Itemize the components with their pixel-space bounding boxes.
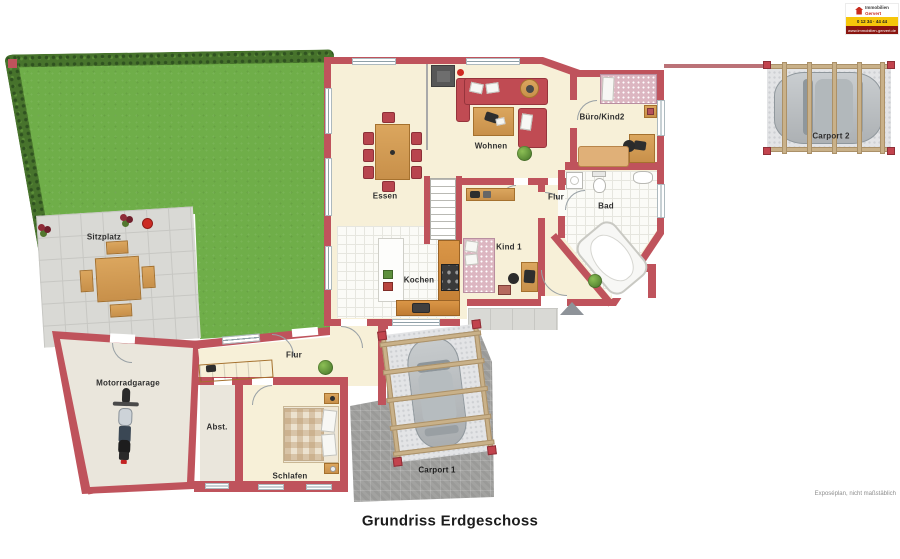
picture-frame: [498, 285, 511, 295]
carport-1-post: [487, 445, 497, 455]
flower-pot: [120, 214, 127, 221]
room-label-wohnen: Wohnen: [475, 142, 508, 151]
door-opening: [425, 150, 429, 176]
kitchen-item-green: [383, 270, 393, 279]
room-label-kind1: Kind 1: [496, 243, 522, 252]
sofa-throw: [520, 113, 533, 130]
carport-2-post: [887, 61, 895, 69]
door-opening: [538, 192, 545, 218]
entrance-arrow: [560, 302, 584, 315]
carport-1-post: [393, 457, 403, 467]
bed-pillow: [321, 409, 338, 433]
motorcycle: [109, 388, 142, 467]
window: [325, 158, 332, 216]
carport-2-beam: [782, 62, 787, 154]
nightstand-lamp: [330, 396, 335, 401]
entrance-walkway: [468, 308, 558, 330]
dining-chair: [411, 132, 422, 145]
staircase: [430, 178, 456, 240]
room-label-carport2: Carport 2: [812, 132, 849, 141]
terrace-table: [95, 256, 142, 303]
bedroom-east-wall: [340, 385, 348, 492]
window: [466, 58, 520, 65]
dining-chair: [411, 166, 422, 179]
logo-name-line1: Immobilien: [865, 5, 889, 10]
nightstand-lamp: [330, 466, 336, 472]
side-table-decor: [526, 85, 534, 93]
logo-header: Immobilien Gervert: [846, 4, 898, 17]
kitchen-sink: [412, 303, 430, 313]
bed-pillow: [464, 240, 478, 253]
books: [470, 191, 480, 198]
window: [352, 58, 396, 65]
fireplace: [431, 65, 455, 87]
picture-frame: [647, 108, 654, 115]
carport-2-post: [763, 147, 771, 155]
door-opening: [341, 319, 367, 326]
floor-plan-canvas: Essen Wohnen Büro/Kind2 Flur Bad Kind 1 …: [0, 0, 900, 559]
sink: [633, 171, 653, 184]
carport-2-beam: [880, 62, 885, 154]
door-opening: [514, 178, 528, 185]
office-sofa: [578, 146, 629, 167]
carport-2-post: [763, 61, 771, 69]
room-label-schlafen: Schlafen: [273, 472, 308, 481]
window: [325, 246, 332, 290]
dining-chair: [363, 149, 374, 162]
boundary-wall-corner: [8, 59, 17, 68]
door-opening: [252, 378, 273, 385]
laptop: [524, 270, 536, 284]
window: [205, 483, 229, 489]
carport-2-post: [887, 147, 895, 155]
table-decor: [390, 150, 395, 155]
sofa-pillow: [485, 82, 499, 94]
bed-pillow: [601, 77, 614, 102]
desk-chair: [508, 273, 519, 284]
room-label-buero-kind2: Büro/Kind2: [579, 113, 624, 122]
room-label-sitzplatz: Sitzplatz: [87, 233, 121, 242]
logo: Immobilien Gervert 0 12 34 · 44 44 www.i…: [846, 4, 898, 34]
terrace: [36, 206, 201, 347]
room-label-motorradgarage: Motorradgarage: [96, 379, 160, 388]
room-label-kochen: Kochen: [404, 276, 435, 285]
carport-1-post: [471, 319, 481, 329]
bed-pillow: [464, 253, 478, 265]
door-opening: [570, 100, 577, 128]
stove-pipe: [457, 69, 464, 76]
carport-2-beam: [857, 62, 862, 154]
terrace-chair: [106, 240, 129, 254]
potted-plant: [517, 146, 532, 161]
storage-bedroom-wall: [235, 377, 243, 490]
logo-name-line2: Gervert: [865, 11, 889, 16]
carport-2-beam: [807, 62, 812, 154]
logo-house-icon: [855, 7, 863, 15]
plan-title: Grundriss Erdgeschoss: [362, 513, 538, 530]
washing-machine: [566, 172, 583, 189]
terrace-chair: [141, 266, 155, 289]
window: [657, 100, 665, 136]
dining-chair: [411, 149, 422, 162]
room-label-bad: Bad: [598, 202, 614, 211]
toilet-bowl: [593, 178, 606, 193]
room-label-flur-lower: Flur: [286, 351, 302, 360]
logo-website: www.immobilien-gervert.de: [846, 26, 898, 34]
bed-duvet: [284, 408, 324, 461]
room-label-essen: Essen: [373, 192, 398, 201]
carport-1-post: [377, 331, 387, 341]
logo-phone: 0 12 34 · 44 44: [846, 17, 898, 26]
terrace-chair: [110, 303, 133, 317]
terrace-chair: [80, 270, 94, 293]
room-label-flur-upper: Flur: [548, 193, 564, 202]
carport-1: [378, 320, 496, 465]
storage-floor: [200, 385, 235, 482]
window: [392, 319, 440, 326]
toilet: [592, 171, 606, 177]
room-label-carport1: Carport 1: [418, 466, 455, 475]
stove: [441, 264, 459, 291]
dining-chair: [363, 166, 374, 179]
window: [325, 88, 332, 134]
dining-chair: [382, 181, 395, 192]
window: [657, 184, 665, 218]
kitchen-item-red: [383, 282, 393, 291]
sideboard-decor: [206, 365, 216, 373]
window: [306, 484, 332, 490]
laptop: [633, 140, 646, 151]
potted-plant: [588, 274, 602, 288]
dining-chair: [363, 132, 374, 145]
room-label-abstellraum: Abst.: [207, 423, 228, 432]
stair-wall: [456, 176, 462, 244]
flower-pot: [38, 224, 45, 231]
bed-pillow: [321, 433, 337, 456]
dining-chair: [382, 112, 395, 123]
books: [483, 191, 491, 198]
window: [258, 484, 284, 490]
red-planter: [142, 218, 153, 229]
plan-disclaimer: Exposéplan, nicht maßstäblich: [815, 491, 896, 497]
fence-line: [664, 64, 764, 68]
potted-plant: [318, 360, 333, 375]
door-opening: [110, 333, 135, 343]
porch-wall: [648, 272, 656, 298]
